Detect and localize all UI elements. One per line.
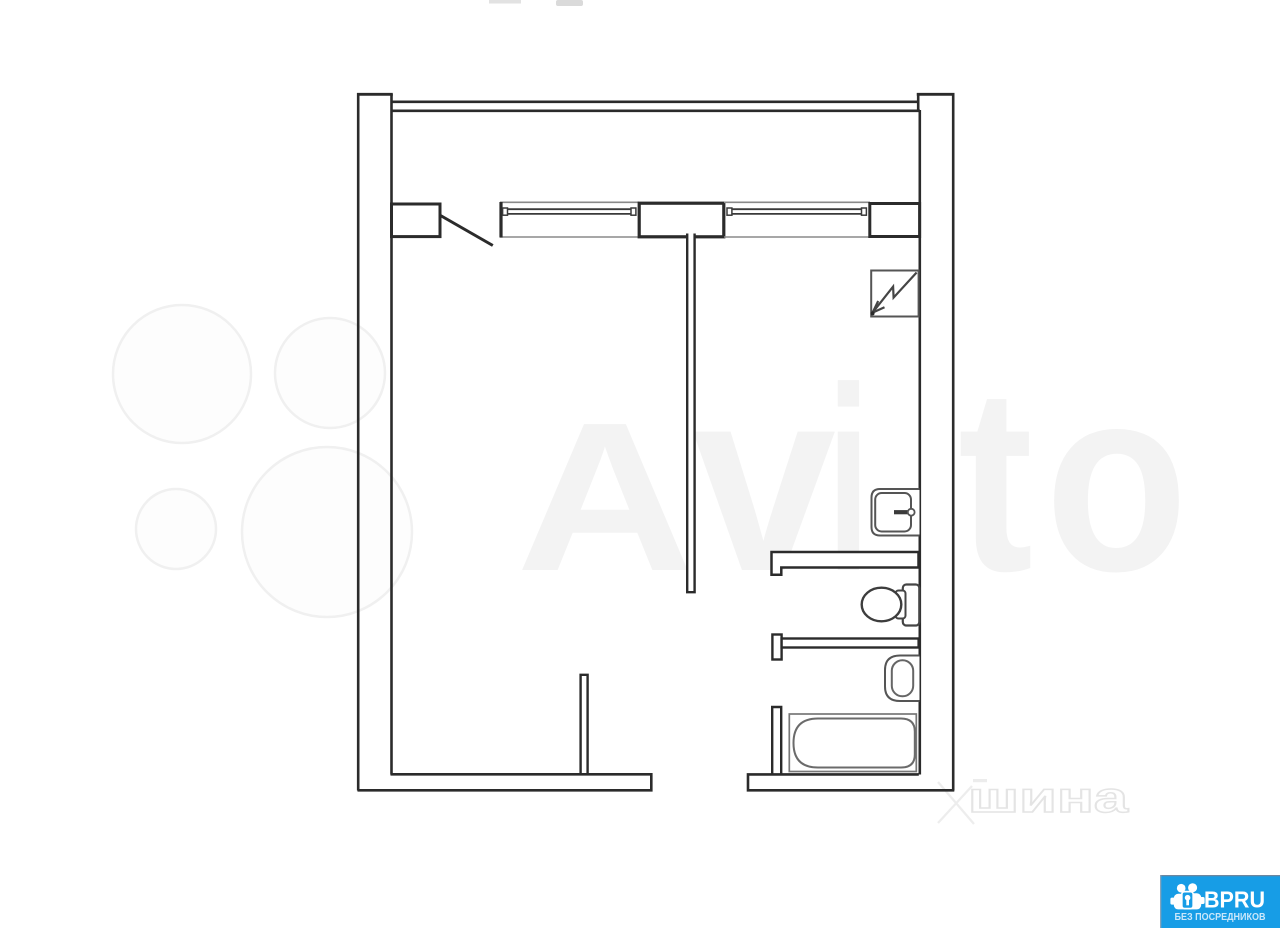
svg-text:БЕЗ ПОСРЕДНИКОВ: БЕЗ ПОСРЕДНИКОВ <box>1175 912 1266 923</box>
svg-text:i: i <box>827 333 870 626</box>
svg-text:v: v <box>692 333 838 626</box>
svg-text:шина: шина <box>968 774 1130 822</box>
svg-text:A: A <box>516 378 694 615</box>
svg-text:t: t <box>958 333 1033 626</box>
svg-text:o: o <box>1045 333 1188 626</box>
svg-text:BPRU: BPRU <box>1204 887 1265 913</box>
